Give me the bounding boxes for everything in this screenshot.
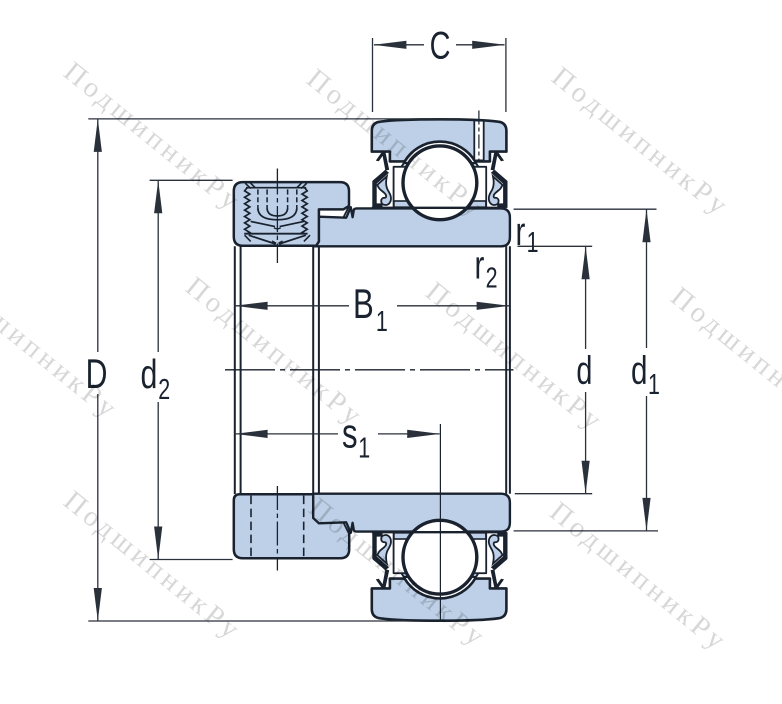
svg-text:2: 2 bbox=[486, 262, 498, 294]
svg-text:1: 1 bbox=[358, 432, 370, 464]
svg-text:1: 1 bbox=[376, 306, 388, 338]
svg-text:1: 1 bbox=[527, 227, 539, 259]
svg-text:d: d bbox=[141, 350, 158, 397]
svg-text:r: r bbox=[516, 210, 526, 254]
svg-text:B: B bbox=[353, 280, 374, 327]
svg-text:2: 2 bbox=[158, 374, 170, 406]
svg-text:C: C bbox=[430, 24, 451, 67]
svg-text:1: 1 bbox=[648, 369, 660, 401]
svg-text:d: d bbox=[631, 349, 647, 393]
svg-text:d: d bbox=[576, 349, 592, 394]
svg-text:r: r bbox=[475, 243, 485, 287]
